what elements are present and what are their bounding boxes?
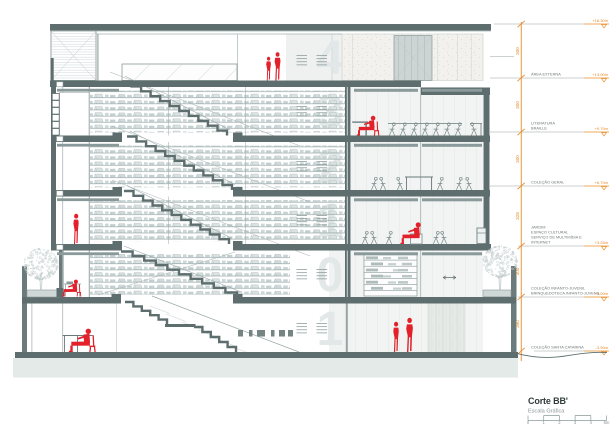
svg-text:300: 300 (515, 155, 520, 163)
svg-text:Corte BB': Corte BB' (528, 396, 568, 406)
svg-text:300: 300 (515, 267, 520, 275)
svg-text:+9.70m: +9.70m (595, 126, 609, 131)
svg-text:328: 328 (515, 212, 520, 220)
svg-text:-3.90m: -3.90m (596, 345, 609, 350)
svg-text:COLEÇÃO SANTA CATARINA: COLEÇÃO SANTA CATARINA (531, 345, 584, 350)
svg-text:INTERNET: INTERNET (531, 240, 551, 245)
svg-text:BRINQUEDOTECA INFANTO-JUVENIL: BRINQUEDOTECA INFANTO-JUVENIL (531, 291, 601, 296)
svg-text:COLEÇÃO GERAL: COLEÇÃO GERAL (531, 180, 565, 185)
svg-text:300: 300 (515, 101, 520, 109)
svg-text:390: 390 (515, 320, 520, 328)
svg-text:ÁREA EXTERNA: ÁREA EXTERNA (531, 72, 561, 77)
svg-text:+6.70m: +6.70m (595, 180, 609, 185)
svg-text:+16.30m: +16.30m (592, 18, 608, 23)
svg-text:300: 300 (515, 47, 520, 55)
svg-text:5m: 5m (604, 420, 610, 424)
svg-text:BRAILLE: BRAILLE (531, 126, 547, 131)
svg-text:+3.25m: +3.25m (595, 240, 609, 245)
svg-text:Escala Gráfica: Escala Gráfica (528, 409, 565, 415)
svg-text:+13.00m: +13.00m (592, 72, 608, 77)
